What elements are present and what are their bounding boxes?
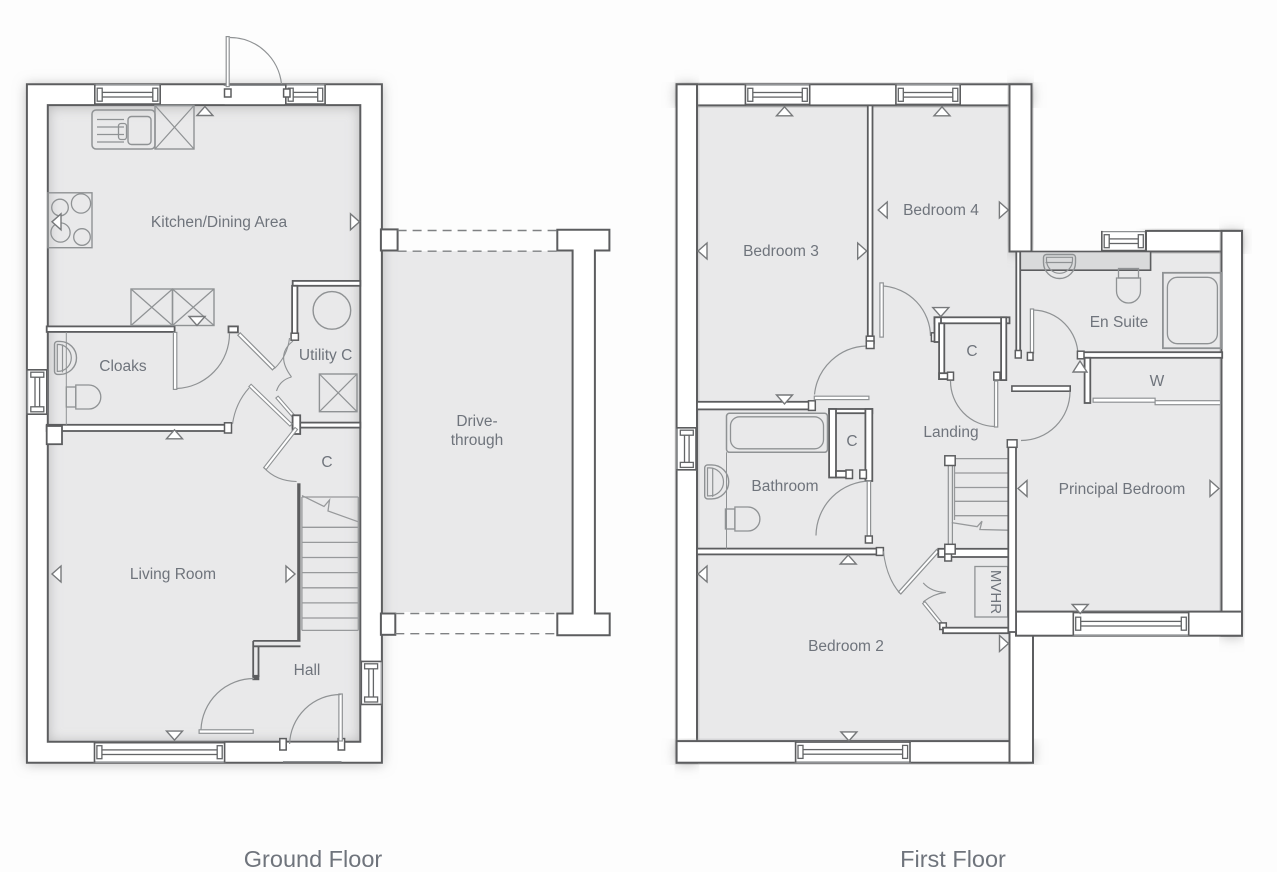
svg-text:Bedroom 4: Bedroom 4 [903,202,979,219]
svg-text:Landing: Landing [923,424,978,441]
svg-text:Kitchen/Dining Area: Kitchen/Dining Area [151,214,288,231]
svg-text:Cloaks: Cloaks [99,358,147,375]
svg-text:C: C [321,454,332,471]
svg-text:Bedroom 3: Bedroom 3 [743,243,819,260]
svg-text:C: C [966,343,977,360]
svg-text:En Suite: En Suite [1090,314,1149,331]
svg-text:Drive-: Drive- [456,413,497,430]
svg-text:Principal Bedroom: Principal Bedroom [1059,481,1186,498]
svg-text:W: W [1150,373,1165,390]
svg-text:Utility C: Utility C [299,347,352,364]
svg-text:First Floor: First Floor [900,846,1006,872]
svg-text:Bathroom: Bathroom [751,478,818,495]
svg-text:through: through [451,432,504,449]
svg-text:Hall: Hall [294,662,321,679]
svg-text:C: C [846,433,857,450]
svg-text:Living Room: Living Room [130,566,216,583]
svg-text:MVHR: MVHR [987,570,1004,614]
svg-text:Ground Floor: Ground Floor [244,846,383,872]
svg-text:Bedroom 2: Bedroom 2 [808,638,884,655]
